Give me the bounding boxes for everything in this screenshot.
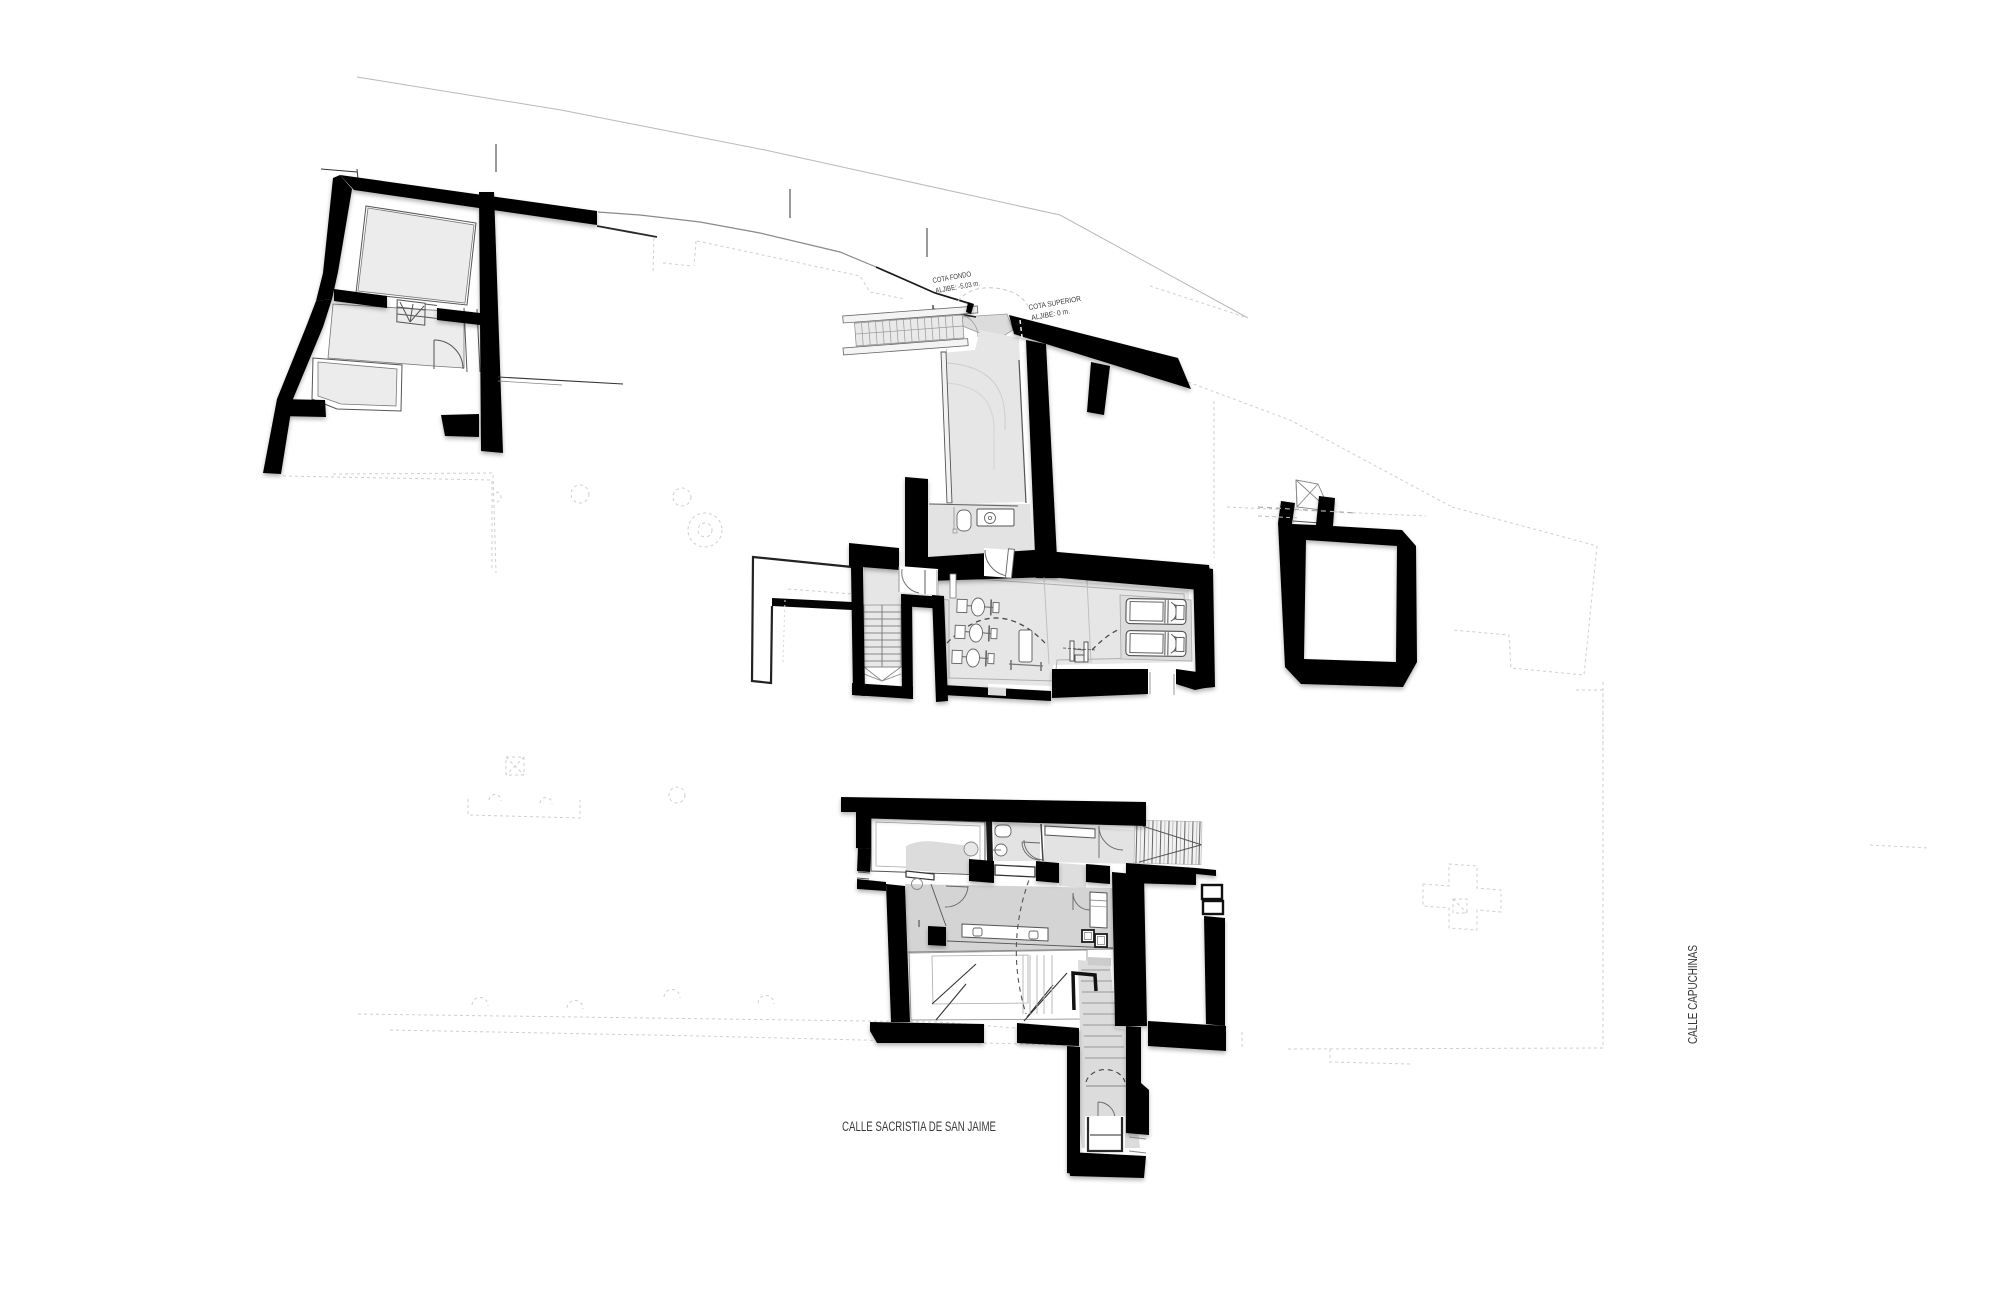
svg-text:CALLE SACRISTIA DE SAN JAIME: CALLE SACRISTIA DE SAN JAIME xyxy=(842,1119,996,1134)
svg-text:CALLE CAPUCHINAS: CALLE CAPUCHINAS xyxy=(1685,945,1700,1044)
